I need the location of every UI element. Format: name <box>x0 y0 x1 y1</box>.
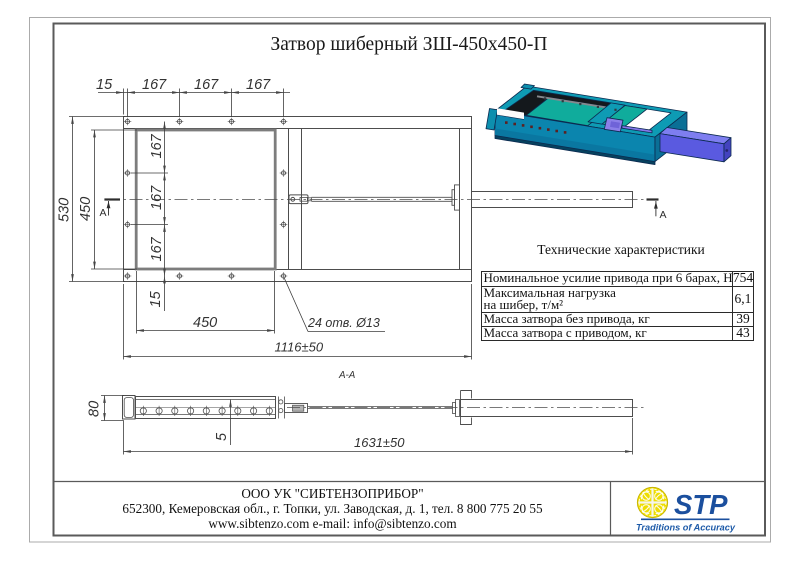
svg-text:Traditions of Accuracy: Traditions of Accuracy <box>636 523 736 533</box>
svg-text:5: 5 <box>214 432 230 441</box>
svg-text:1631±50: 1631±50 <box>354 435 405 450</box>
svg-text:167: 167 <box>246 77 271 93</box>
svg-text:167: 167 <box>149 133 165 158</box>
svg-text:1116±50: 1116±50 <box>275 340 324 355</box>
svg-text:15: 15 <box>148 290 164 307</box>
svg-text:167: 167 <box>194 77 219 93</box>
svg-text:24 отв. Ø13: 24 отв. Ø13 <box>307 316 380 330</box>
svg-text:15: 15 <box>96 77 113 93</box>
svg-text:А-А: А-А <box>338 370 356 381</box>
svg-text:STP: STP <box>674 489 728 520</box>
svg-text:167: 167 <box>149 236 165 261</box>
svg-text:167: 167 <box>149 185 165 210</box>
svg-text:167: 167 <box>142 77 167 93</box>
svg-text:450: 450 <box>78 197 94 221</box>
svg-text:A: A <box>100 207 107 219</box>
svg-text:530: 530 <box>57 198 73 222</box>
svg-text:A: A <box>660 209 667 221</box>
svg-text:80: 80 <box>87 401 103 417</box>
svg-text:450: 450 <box>193 315 217 331</box>
